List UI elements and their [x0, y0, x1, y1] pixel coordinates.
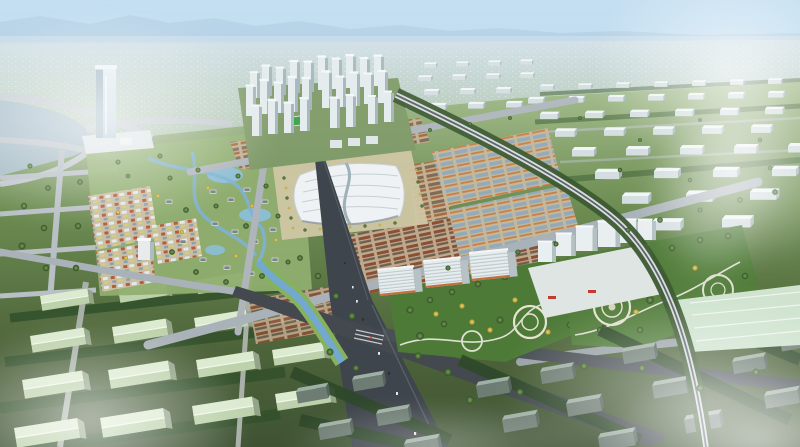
pond-3: [205, 245, 225, 255]
aerial-render: [0, 0, 800, 447]
tower-roof: [95, 65, 117, 69]
podium-sign-red: [548, 296, 556, 299]
town-block-3: [152, 218, 202, 264]
tower-side: [96, 70, 103, 138]
tower-face: [103, 68, 116, 138]
tower-highlight: [105, 76, 107, 134]
scene-svg: [0, 0, 800, 447]
